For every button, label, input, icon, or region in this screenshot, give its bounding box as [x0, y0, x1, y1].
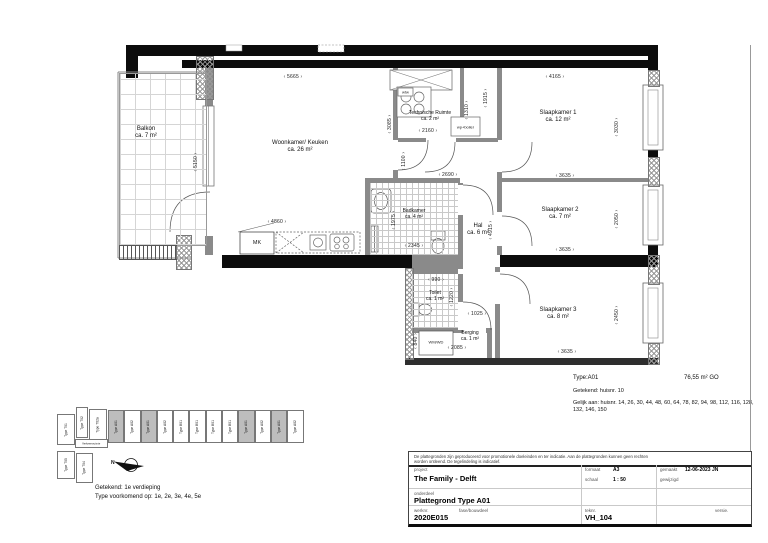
divider: [581, 465, 582, 524]
label-versie: versie.: [715, 508, 728, 513]
unit-label: Type B01: [180, 420, 183, 434]
type-label: Type:A01: [573, 375, 598, 381]
north-arrow: [114, 459, 144, 472]
getekend-huisnr: Getekend: huisnr. 10: [573, 388, 624, 394]
room-name: Hal: [473, 223, 482, 229]
dim-toilet-w: 990: [428, 277, 444, 283]
overview-unit-t04: Type T04: [76, 453, 93, 483]
dim-badkamer-w: 2345: [405, 243, 424, 249]
value-werknr: 2020E015: [414, 513, 448, 522]
room-label-woonkamer: Woonkamer/ Keuken ca. 26 m²: [272, 140, 328, 154]
value-formaat: A3: [613, 467, 619, 473]
unit-label: Type B01: [229, 420, 232, 434]
value-project: The Family - Delft: [414, 474, 477, 483]
room-label-slaapkamer-1: Slaapkamer 1 ca. 12 m²: [539, 110, 576, 124]
wall-pier-hatch: [648, 70, 660, 87]
label-gewijzigd: gewijzigd: [660, 477, 679, 482]
room-name: Slaapkamer 2: [541, 207, 578, 213]
label-fase: fase/bouwdeel: [459, 508, 488, 513]
unit-label: Type B01: [212, 420, 215, 434]
unit-label: Type A02: [261, 420, 264, 434]
disclaimer: De plattegronden zijn geproduceerd voor …: [414, 454, 654, 464]
overview-strip-unit: Type B01: [206, 410, 222, 443]
kitchen-counter: [238, 223, 360, 254]
dim-sl1-bottom: 3635: [556, 173, 575, 179]
unit-label: Type T05: [64, 458, 67, 472]
wp-boiler-label: wp+boiler: [457, 124, 474, 129]
dim-kitchen: 4860: [268, 219, 287, 225]
dim-corridor: 1025: [468, 311, 487, 317]
dim-sl3-right: 2450: [614, 306, 620, 325]
room-name: Woonkamer/ Keuken: [272, 140, 328, 146]
overview-strip-unit: Type A02: [255, 410, 271, 443]
value-onderdeel: Plattegrond Type A01: [414, 496, 490, 505]
wall-pier-hatch: [648, 255, 660, 285]
dim-sl1-right: 3030: [614, 118, 620, 137]
entrance-door: [318, 45, 344, 52]
overview-unit-t02: Type T02: [76, 407, 88, 438]
dim-hal-door: 1100: [401, 152, 407, 171]
overview-strip-unit: Type B01: [222, 410, 238, 443]
corridor-label: Verkeersruimte: [82, 442, 100, 445]
overview-strip-unit: Type A02: [124, 410, 140, 443]
unit-label: Type A01: [245, 420, 248, 434]
unit-label: Type B01: [196, 420, 199, 434]
dim-tr-width: 2160: [419, 128, 438, 134]
unit-label: Type A02: [163, 420, 166, 434]
value-schaal: 1 : 50: [613, 477, 626, 483]
value-gemaakt: 12-06-2023 JN: [685, 467, 718, 473]
meterkast-label: MK: [253, 240, 261, 246]
dim-hal-height: 4915: [488, 221, 494, 240]
overview-caption-1: Getekend: 1e verdieping: [95, 485, 160, 491]
room-area: ca. 6 m²: [467, 230, 489, 237]
overview-unit-strip: Type A01 Type A02 Type A01 Type A02 Type…: [108, 410, 304, 443]
unit-label: Type T01: [64, 423, 67, 437]
dim-tr-inner: 1310: [464, 101, 470, 120]
room-label-toilet: Toilet ca. 1 m²: [426, 290, 444, 302]
dim-living-left: 5150: [193, 153, 199, 172]
room-area: ca. 7 m²: [541, 214, 578, 221]
dim-sl3-bottom: 3635: [558, 349, 577, 355]
dim-sl1-top: 4165: [546, 74, 565, 80]
overview-strip-unit: Type A02: [287, 410, 303, 443]
room-name: Slaapkamer 1: [539, 110, 576, 116]
room-label-berging: Berging ca. 1 m²: [461, 330, 479, 342]
dim-living-top: 5665: [284, 74, 303, 80]
dim-badkamer-h: 1975: [391, 211, 397, 230]
dim-hal-top: 2690: [439, 172, 458, 178]
room-area: ca. 1 m²: [426, 296, 444, 302]
wall-pier-hatch: [648, 157, 660, 187]
dim-toilet-h: 1220: [449, 288, 455, 307]
room-label-slaapkamer-2: Slaapkamer 2 ca. 7 m²: [541, 207, 578, 221]
room-label-hal: Hal ca. 6 m²: [467, 223, 489, 237]
room-label-technische-ruimte: Technische Ruimte ca. 2 m²: [409, 110, 451, 122]
room-label-balkon: Balkon ca. 7 m²: [135, 126, 157, 140]
area-go: 76,55 m² GO: [684, 375, 719, 381]
unit-label: Type T02: [80, 416, 83, 430]
overview-strip-unit: Type A01: [108, 410, 124, 443]
room-label-badkamer: Badkamer ca. 4 m²: [403, 208, 426, 220]
overview-unit-t02a: Type T02a: [89, 409, 107, 441]
dim-berging-w: 2085: [448, 345, 467, 351]
unit-label: Type A01: [277, 420, 280, 434]
dim-tr-right: 1915: [483, 89, 489, 108]
overview-strip-unit: Type A01: [141, 410, 157, 443]
unit-label: Type T04: [83, 461, 86, 475]
dim-wm: 840: [413, 333, 419, 349]
label-formaat: formaat: [585, 467, 600, 472]
top-wall-notch: [226, 45, 242, 51]
unit-label: Type T02a: [96, 417, 99, 433]
title-block: De plattegronden zijn geproduceerd voor …: [408, 451, 752, 527]
label-project: project: [414, 467, 428, 472]
room-name: Slaapkamer 3: [539, 307, 576, 313]
divider: [409, 488, 751, 489]
wtw-label: wtw: [402, 90, 409, 95]
overview-strip-unit: Type B01: [173, 410, 189, 443]
room-name: Balkon: [137, 126, 155, 132]
room-area: ca. 12 m²: [539, 117, 576, 124]
room-area: ca. 26 m²: [272, 147, 328, 154]
unit-label: Type A02: [294, 420, 297, 434]
wm-wd-label: WM/WD: [429, 340, 444, 345]
overview-strip-unit: Type A01: [238, 410, 254, 443]
dim-tr-left: 3085: [387, 115, 393, 134]
overview-strip-unit: Type B01: [189, 410, 205, 443]
gelijk-aan: Gelijk aan: huisnr. 14, 26, 30, 44, 48, …: [573, 400, 755, 413]
overview-caption-2: Type voorkomend op: 1e, 2e, 3e, 4e, 5e: [95, 494, 201, 500]
overview-unit-t01: Type T01: [57, 414, 75, 445]
label-gemaakt: gemaakt: [660, 467, 677, 472]
drawing-sheet: Balkon ca. 7 m² Woonkamer/ Keuken ca. 26…: [0, 0, 768, 543]
room-area: ca. 4 m²: [403, 214, 426, 220]
overview-strip-unit: Type A02: [157, 410, 173, 443]
label-schaal: schaal: [585, 477, 598, 482]
north-label: N: [111, 460, 115, 466]
balcony-railing: [119, 245, 177, 260]
overview-corridor: Verkeersruimte: [75, 439, 108, 448]
room-area: ca. 1 m²: [461, 336, 479, 342]
room-area: ca. 2 m²: [409, 116, 451, 122]
wall-pier-hatch: [648, 343, 660, 365]
divider: [409, 505, 751, 506]
unit-label: Type A01: [115, 420, 118, 434]
dim-sl2-right: 2050: [614, 210, 620, 229]
dim-sl2-bottom: 3635: [556, 247, 575, 253]
overview-unit-t05: Type T05: [57, 451, 75, 479]
room-area: ca. 7 m²: [135, 133, 157, 140]
divider: [656, 465, 657, 524]
room-area: ca. 8 m²: [539, 314, 576, 321]
unit-label: Type A02: [131, 420, 134, 434]
room-label-slaapkamer-3: Slaapkamer 3 ca. 8 m²: [539, 307, 576, 321]
value-teknr: VH_104: [585, 513, 612, 522]
facade-windows: [643, 85, 663, 343]
overview-strip-unit: Type A01: [271, 410, 287, 443]
unit-label: Type A01: [147, 420, 150, 434]
